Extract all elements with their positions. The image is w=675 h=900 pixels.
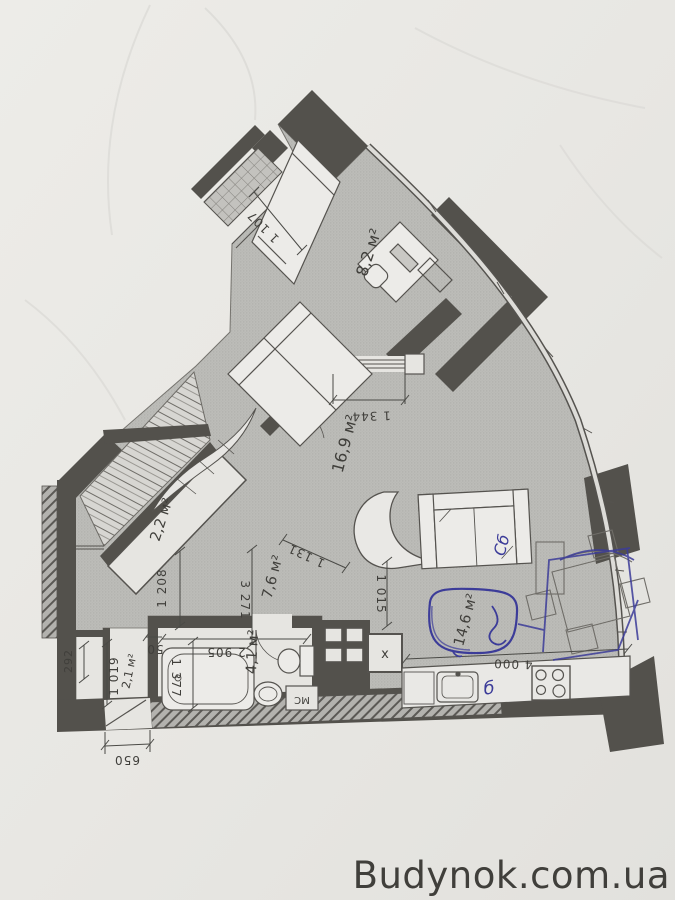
- dim-1015: 1 015: [374, 574, 388, 613]
- watermark: Budynok.com.ua: [353, 854, 670, 897]
- window-jamb-right: [405, 354, 424, 374]
- wall-bathroom-top: [148, 616, 322, 628]
- sofa-arm-left: [418, 494, 437, 569]
- label-washing-machine: МС: [294, 694, 310, 705]
- door-bathroom: [252, 614, 292, 630]
- wall-bathroom-left: [148, 616, 158, 712]
- dim-4000: 4 000: [493, 656, 533, 671]
- dim-1019: 1 019: [107, 656, 121, 695]
- floorplan-photo: 8,2 м² 16,9 м² 2,2 м² 7,6 м² 4,1 м² 14,6…: [0, 0, 675, 900]
- toilet-tank: [300, 646, 314, 676]
- dim-1208: 1 208: [155, 568, 169, 607]
- wall-niche-top: [76, 630, 103, 637]
- dim-2905: 2 905: [206, 645, 245, 659]
- door-entry: [104, 698, 152, 730]
- floorplan-canvas: 8,2 м² 16,9 м² 2,2 м² 7,6 м² 4,1 м² 14,6…: [0, 0, 675, 900]
- sofa: [418, 489, 532, 569]
- dim-1344: 1 344: [351, 408, 391, 423]
- niche-floor: [76, 636, 103, 706]
- dim-292: 292: [62, 649, 75, 673]
- dim-3271: 3 271: [238, 580, 252, 619]
- basin: [254, 682, 282, 706]
- dim-50: 50: [146, 642, 163, 656]
- dim-1377: 1 377: [169, 658, 183, 697]
- faucet: [456, 672, 460, 676]
- wall-section-left: [42, 486, 57, 638]
- dim-650: 650: [114, 753, 140, 767]
- label-shaft-x: х: [381, 647, 389, 662]
- toilet-bowl: [278, 649, 300, 673]
